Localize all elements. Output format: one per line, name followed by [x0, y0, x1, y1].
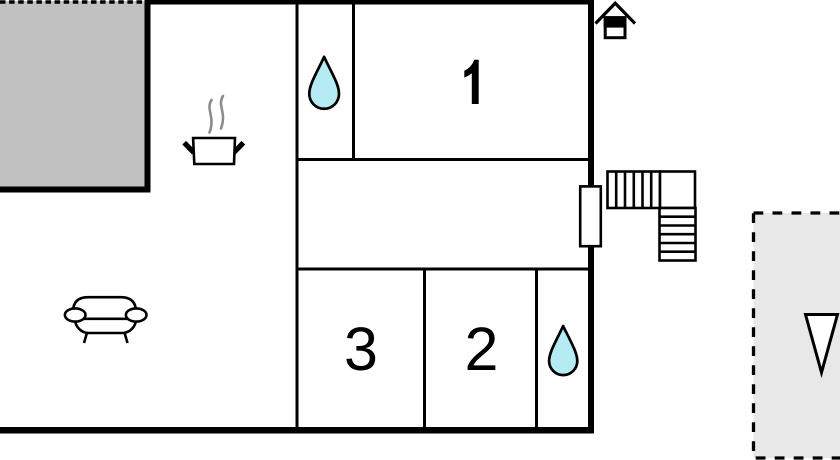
svg-text:2: 2 — [465, 315, 499, 383]
svg-text:3: 3 — [344, 315, 378, 383]
